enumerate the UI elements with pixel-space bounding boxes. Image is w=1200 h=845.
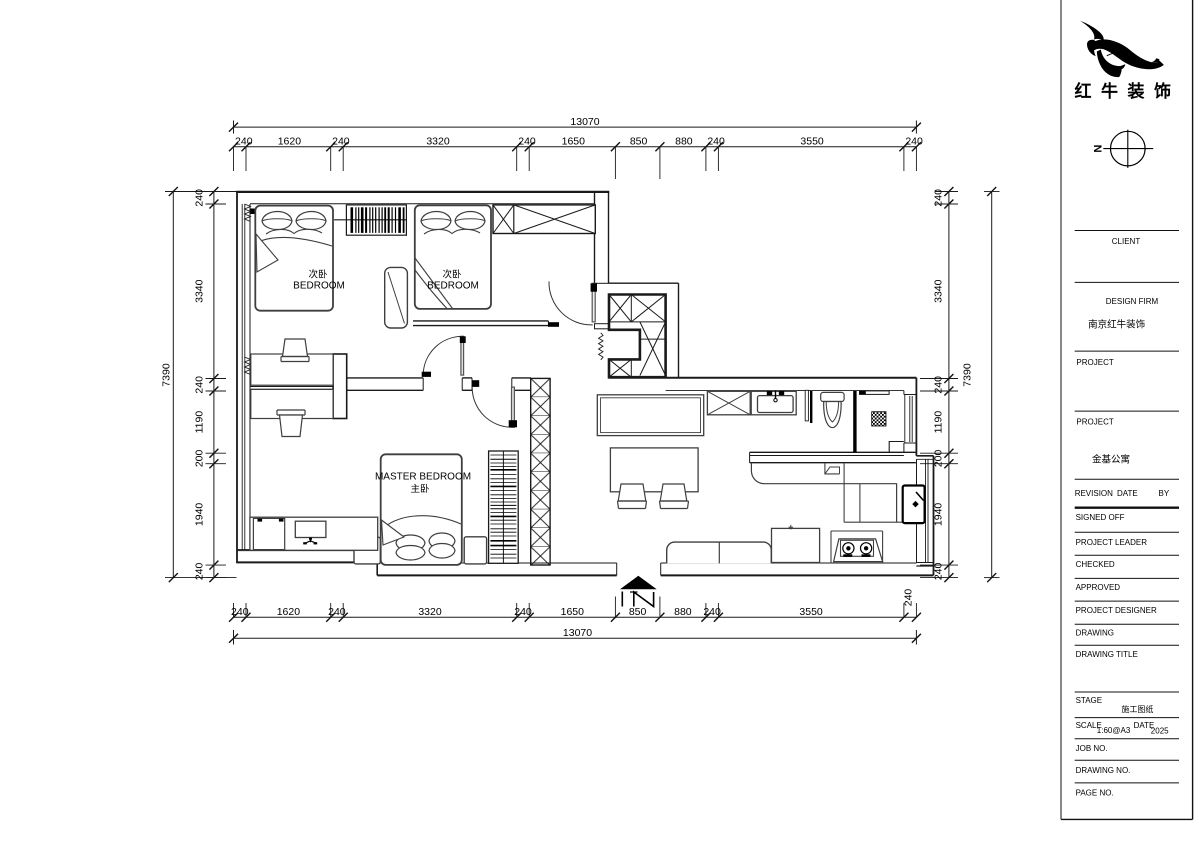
svg-text:DRAWING NO.: DRAWING NO. bbox=[1076, 766, 1131, 775]
svg-text:13070: 13070 bbox=[563, 627, 592, 639]
svg-text:240: 240 bbox=[328, 606, 346, 618]
svg-text:1650: 1650 bbox=[562, 136, 586, 148]
svg-text:1:60@A3: 1:60@A3 bbox=[1097, 726, 1131, 735]
svg-text:240: 240 bbox=[194, 376, 206, 394]
svg-text:BY: BY bbox=[1159, 489, 1170, 498]
svg-text:240: 240 bbox=[332, 136, 350, 148]
svg-text:PROJECT: PROJECT bbox=[1076, 358, 1113, 367]
svg-text:CHECKED: CHECKED bbox=[1076, 560, 1115, 569]
svg-text:240: 240 bbox=[518, 136, 536, 148]
svg-text:240: 240 bbox=[231, 606, 249, 618]
svg-text:MASTER BEDROOM: MASTER BEDROOM bbox=[375, 472, 471, 483]
svg-text:主卧: 主卧 bbox=[410, 483, 430, 495]
svg-text:240: 240 bbox=[514, 606, 532, 618]
svg-text:STAGE: STAGE bbox=[1076, 696, 1103, 705]
svg-text:240: 240 bbox=[707, 136, 725, 148]
svg-text:红牛装饰: 红牛装饰 bbox=[1075, 81, 1181, 101]
svg-text:PAGE NO.: PAGE NO. bbox=[1076, 789, 1114, 798]
svg-text:13070: 13070 bbox=[570, 116, 599, 128]
svg-text:7390: 7390 bbox=[962, 363, 974, 387]
svg-text:880: 880 bbox=[675, 136, 693, 148]
svg-text:BEDROOM: BEDROOM bbox=[427, 281, 479, 292]
svg-text:DRAWING TITLE: DRAWING TITLE bbox=[1076, 650, 1138, 659]
svg-text:3320: 3320 bbox=[426, 136, 450, 148]
svg-text:1190: 1190 bbox=[933, 411, 945, 434]
svg-text:240: 240 bbox=[933, 376, 945, 394]
svg-text:JOB NO.: JOB NO. bbox=[1076, 744, 1108, 753]
svg-text:DATE: DATE bbox=[1117, 489, 1138, 498]
svg-text:次卧: 次卧 bbox=[442, 268, 462, 280]
svg-text:施工图纸: 施工图纸 bbox=[1121, 704, 1153, 714]
svg-text:850: 850 bbox=[629, 606, 647, 618]
svg-text:次卧: 次卧 bbox=[308, 268, 328, 280]
svg-text:240: 240 bbox=[235, 136, 253, 148]
svg-text:3550: 3550 bbox=[799, 606, 823, 618]
svg-text:SIGNED OFF: SIGNED OFF bbox=[1076, 513, 1125, 522]
svg-text:APPROVED: APPROVED bbox=[1076, 583, 1121, 592]
svg-text:850: 850 bbox=[630, 136, 648, 148]
svg-text:BEDROOM: BEDROOM bbox=[293, 281, 345, 292]
svg-text:3320: 3320 bbox=[418, 606, 442, 618]
svg-text:200: 200 bbox=[194, 449, 206, 467]
svg-text:880: 880 bbox=[674, 606, 692, 618]
svg-text:240: 240 bbox=[703, 606, 721, 618]
svg-text:240: 240 bbox=[903, 589, 915, 607]
svg-text:240: 240 bbox=[933, 189, 945, 207]
svg-text:240: 240 bbox=[194, 562, 206, 580]
svg-text:3340: 3340 bbox=[933, 279, 945, 303]
svg-text:DRAWING: DRAWING bbox=[1076, 629, 1114, 638]
svg-text:南京红牛装饰: 南京红牛装饰 bbox=[1088, 318, 1145, 330]
svg-text:1620: 1620 bbox=[278, 136, 302, 148]
svg-text:240: 240 bbox=[194, 189, 206, 207]
svg-text:REVISION: REVISION bbox=[1075, 489, 1113, 498]
svg-text:2025: 2025 bbox=[1151, 726, 1169, 735]
svg-text:PROJECT DESIGNER: PROJECT DESIGNER bbox=[1076, 606, 1157, 615]
svg-text:DESIGN FIRM: DESIGN FIRM bbox=[1106, 297, 1159, 306]
svg-text:7390: 7390 bbox=[161, 363, 173, 387]
svg-text:PROJECT LEADER: PROJECT LEADER bbox=[1076, 538, 1148, 547]
svg-text:1940: 1940 bbox=[194, 503, 206, 527]
svg-text:3340: 3340 bbox=[194, 279, 206, 303]
svg-text:CLIENT: CLIENT bbox=[1112, 237, 1141, 246]
svg-text:1190: 1190 bbox=[194, 411, 206, 434]
svg-text:1650: 1650 bbox=[561, 606, 585, 618]
svg-text:金基公寓: 金基公寓 bbox=[1092, 454, 1130, 466]
svg-text:240: 240 bbox=[905, 136, 923, 148]
svg-text:N: N bbox=[1093, 145, 1105, 153]
svg-text:PROJECT: PROJECT bbox=[1076, 417, 1113, 426]
svg-text:1620: 1620 bbox=[277, 606, 301, 618]
svg-text:3550: 3550 bbox=[800, 136, 824, 148]
